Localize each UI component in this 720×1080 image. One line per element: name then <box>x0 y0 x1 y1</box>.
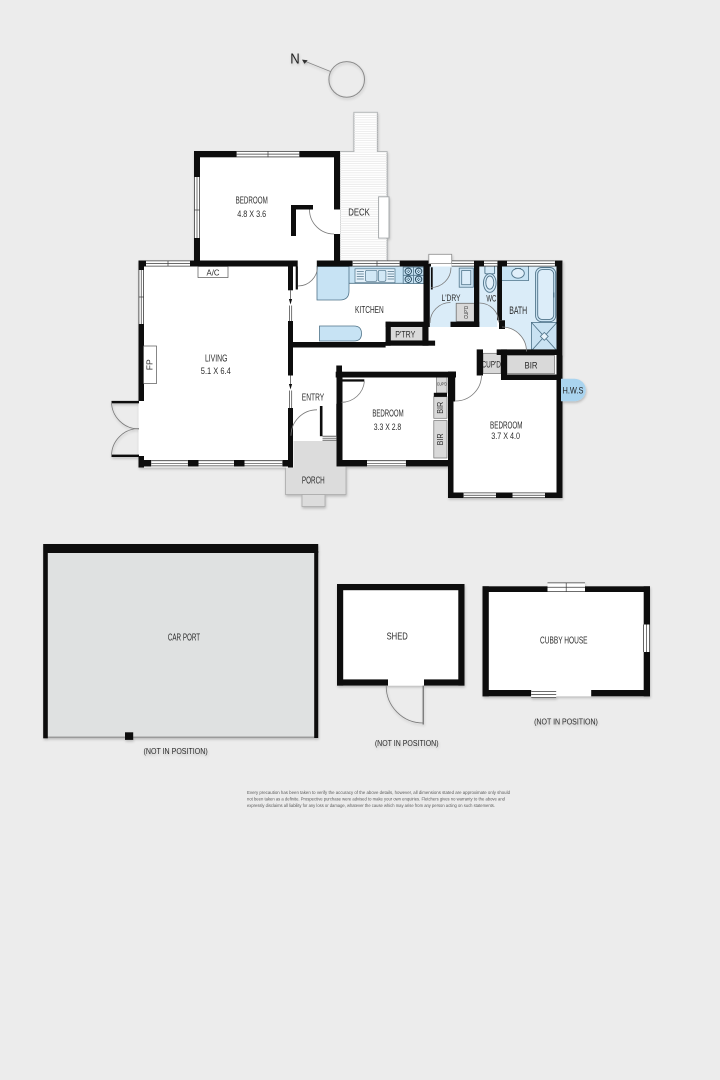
svg-text:ENTRY: ENTRY <box>302 392 325 403</box>
svg-text:(NOT IN POSITION): (NOT IN POSITION) <box>144 746 208 756</box>
svg-text:CUBBY HOUSE: CUBBY HOUSE <box>540 635 588 646</box>
svg-text:not been taken as a definite.: not been taken as a definite. Prospectiv… <box>247 797 505 802</box>
svg-text:N: N <box>290 51 300 68</box>
svg-text:BIR: BIR <box>436 402 445 414</box>
svg-text:4.8 X 3.6: 4.8 X 3.6 <box>237 209 266 220</box>
svg-text:CAR PORT: CAR PORT <box>168 632 201 644</box>
svg-text:expressly disclaims all liabil: expressly disclaims all liability for an… <box>247 803 495 808</box>
svg-text:WC: WC <box>486 293 496 304</box>
svg-text:FP: FP <box>145 359 155 370</box>
svg-text:BEDROOM: BEDROOM <box>236 195 268 206</box>
svg-text:PORCH: PORCH <box>302 475 325 486</box>
svg-text:3.7 X 4.0: 3.7 X 4.0 <box>491 431 520 442</box>
svg-text:SHED: SHED <box>387 631 408 642</box>
svg-text:LIVING: LIVING <box>205 353 228 364</box>
svg-text:3.3 X 2.8: 3.3 X 2.8 <box>374 422 402 433</box>
svg-text:CUP'D: CUP'D <box>464 306 470 319</box>
svg-text:(NOT IN POSITION): (NOT IN POSITION) <box>375 738 439 748</box>
svg-text:BEDROOM: BEDROOM <box>372 408 403 419</box>
svg-text:(NOT IN POSITION): (NOT IN POSITION) <box>534 716 598 726</box>
svg-text:5.1 X 6.4: 5.1 X 6.4 <box>201 366 232 377</box>
svg-text:DECK: DECK <box>348 208 370 219</box>
svg-text:CUP'D: CUP'D <box>437 381 447 386</box>
svg-text:L'DRY: L'DRY <box>442 293 461 304</box>
svg-text:H.W.S: H.W.S <box>563 386 584 396</box>
svg-text:KITCHEN: KITCHEN <box>355 305 384 316</box>
svg-text:CUP'D: CUP'D <box>481 359 501 369</box>
svg-text:P'TRY: P'TRY <box>395 330 415 340</box>
svg-text:BIR: BIR <box>436 433 445 445</box>
svg-text:BATH: BATH <box>509 305 527 317</box>
svg-text:BIR: BIR <box>525 361 538 371</box>
svg-text:A/C: A/C <box>207 267 220 277</box>
svg-text:Every precaution has been take: Every precaution has been taken to verif… <box>247 790 510 795</box>
